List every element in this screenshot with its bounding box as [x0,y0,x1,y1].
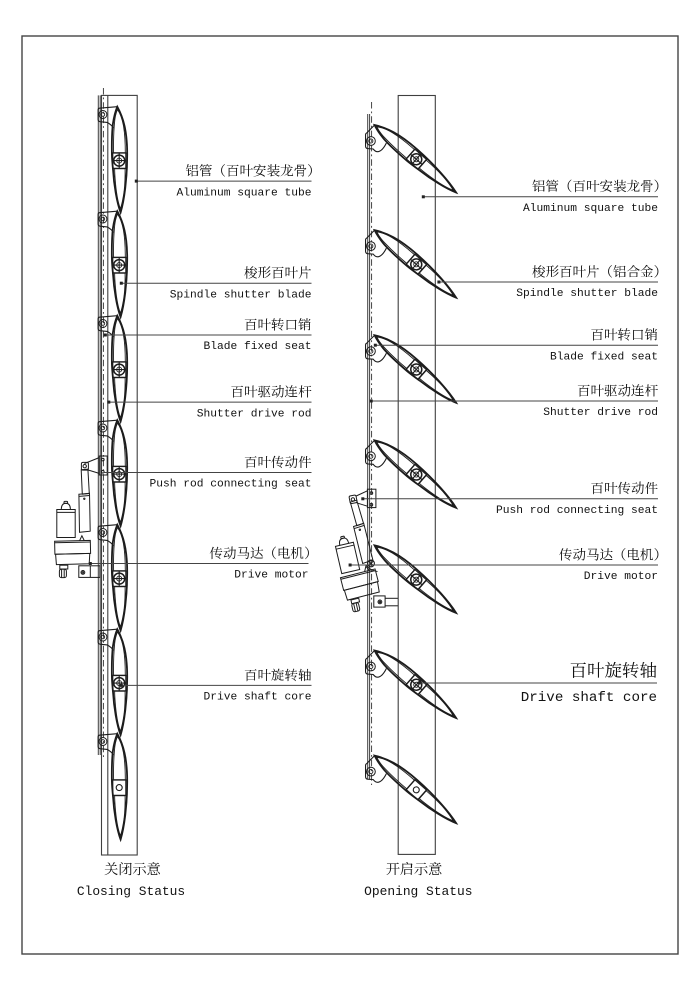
svg-text:Shutter drive rod: Shutter drive rod [197,408,312,420]
svg-text:Aluminum square tube: Aluminum square tube [523,203,658,215]
svg-text:Spindle shutter blade: Spindle shutter blade [170,289,312,301]
svg-text:传动马达（电机）: 传动马达（电机） [210,542,318,562]
svg-text:开启示意: 开启示意 [386,859,443,879]
svg-text:Closing Status: Closing Status [77,884,185,899]
svg-text:百叶传动件: 百叶传动件 [591,477,659,497]
svg-text:Drive motor: Drive motor [584,571,658,583]
svg-text:铝管（百叶安装龙骨）: 铝管（百叶安装龙骨） [532,175,667,195]
svg-text:Blade fixed seat: Blade fixed seat [550,351,658,363]
svg-text:Drive shaft core: Drive shaft core [521,690,657,706]
svg-text:Blade fixed seat: Blade fixed seat [203,341,311,353]
svg-text:传动马达（电机）: 传动马达（电机） [559,543,667,563]
svg-text:百叶传动件: 百叶传动件 [244,451,312,471]
svg-text:Opening Status: Opening Status [364,884,472,899]
svg-text:百叶转口销: 百叶转口销 [244,313,312,333]
svg-text:Drive motor: Drive motor [234,570,308,582]
svg-text:百叶旋转轴: 百叶旋转轴 [570,658,658,683]
svg-text:百叶转口销: 百叶转口销 [591,324,659,344]
svg-text:Push rod connecting seat: Push rod connecting seat [149,479,311,491]
svg-text:Shutter drive rod: Shutter drive rod [543,407,658,419]
svg-text:梭形百叶片（铝合金）: 梭形百叶片（铝合金） [532,260,667,280]
svg-text:梭形百叶片: 梭形百叶片 [244,262,312,282]
svg-text:百叶驱动连杆: 百叶驱动连杆 [577,379,658,399]
svg-text:Drive shaft core: Drive shaft core [203,692,311,704]
svg-text:Spindle shutter blade: Spindle shutter blade [516,288,658,300]
svg-text:百叶驱动连杆: 百叶驱动连杆 [231,381,312,401]
svg-text:Push rod connecting seat: Push rod connecting seat [496,505,658,517]
svg-text:铝管（百叶安装龙骨）: 铝管（百叶安装龙骨） [186,160,321,180]
svg-text:百叶旋转轴: 百叶旋转轴 [244,664,312,684]
svg-text:关闭示意: 关闭示意 [103,859,161,879]
svg-text:Aluminum square tube: Aluminum square tube [176,187,311,199]
